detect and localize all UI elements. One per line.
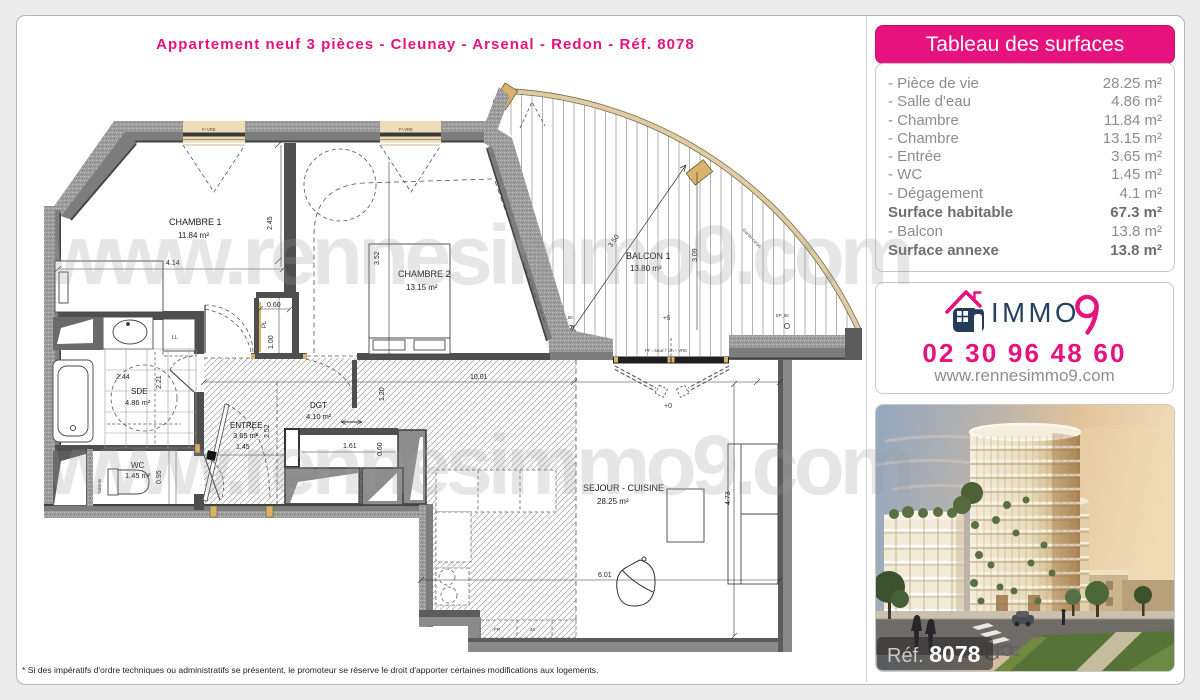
svg-text:SDE: SDE [131, 387, 147, 396]
svg-text:2.44: 2.44 [116, 374, 130, 381]
svg-text:F+VRE: F+VRE [202, 127, 216, 132]
svg-text:4.86 m²: 4.86 m² [125, 398, 151, 407]
svg-text:EP_60: EP_60 [776, 313, 789, 318]
svg-text:2.21: 2.21 [156, 375, 163, 389]
svg-text:1.20: 1.20 [379, 387, 386, 401]
svg-text:LL: LL [172, 335, 178, 341]
svg-text:+0: +0 [664, 403, 672, 410]
svg-text:F+VRE: F+VRE [399, 127, 413, 132]
svg-text:1.00: 1.00 [268, 335, 275, 349]
svg-text:40: 40 [530, 627, 536, 632]
svg-text:FR: FR [494, 627, 501, 632]
svg-text:DGT: DGT [310, 401, 327, 410]
svg-text:www.rennesimmo9.com: www.rennesimmo9.com [45, 208, 910, 302]
svg-text:6.01: 6.01 [598, 572, 612, 579]
svg-text:10.01: 10.01 [470, 374, 488, 381]
svg-text:PF - Seuil 7 cm + VRE: PF - Seuil 7 cm + VRE [645, 348, 687, 353]
svg-text:+5: +5 [663, 315, 671, 322]
svg-text:PL: PL [262, 320, 268, 328]
svg-text:www.rennesimmo9.com: www.rennesimmo9.com [45, 418, 910, 512]
